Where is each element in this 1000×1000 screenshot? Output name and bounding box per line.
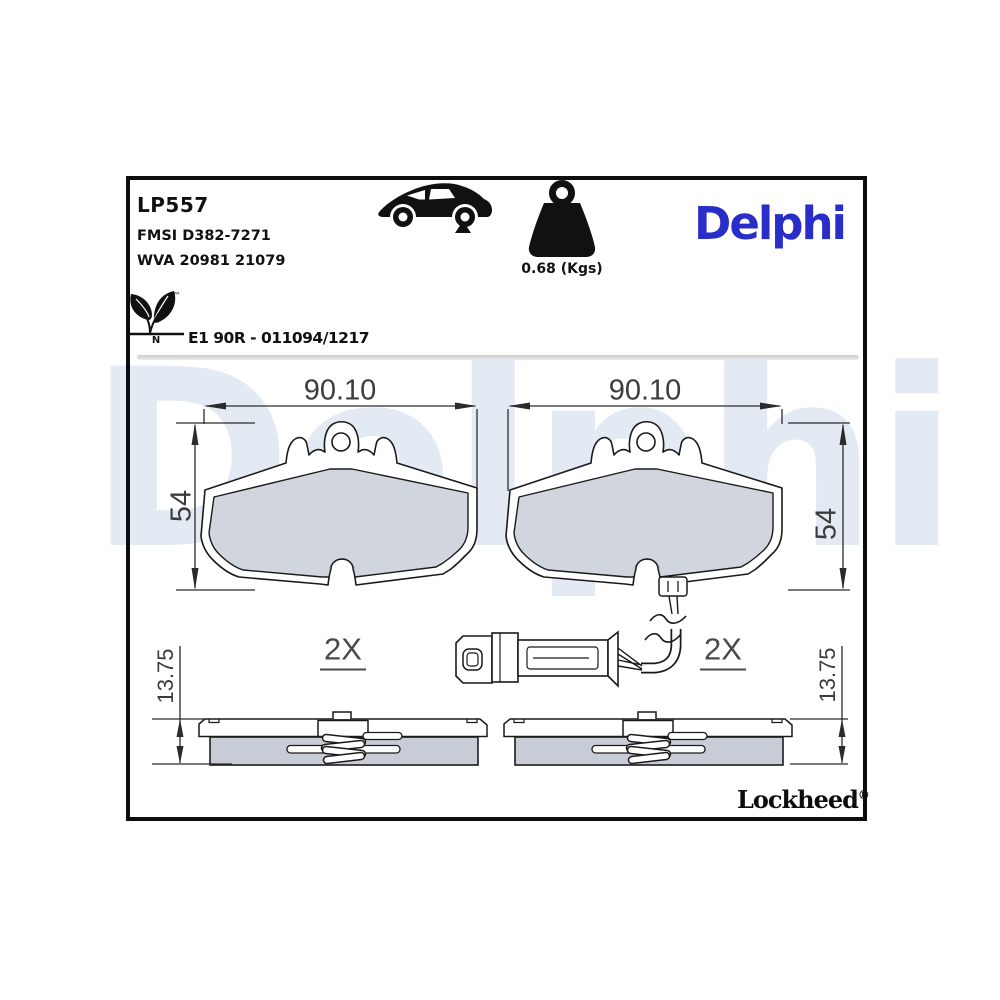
lockheed-brand: Lockheed® <box>737 785 869 814</box>
trademark-symbol: ™ <box>173 291 181 300</box>
thickness-dimension-label-right: 13.75 <box>815 647 841 702</box>
approval-code: E1 90R - 011094/1217 <box>188 329 369 347</box>
height-dimension-label-right: 54 <box>811 508 844 540</box>
width-dimension-label-right: 90.10 <box>609 375 682 408</box>
lockheed-text: Lockheed <box>737 785 858 814</box>
eco-mark-letter: N <box>147 335 165 346</box>
drawing-frame <box>126 176 867 821</box>
height-dimension-label-left: 54 <box>166 490 199 522</box>
weight-value: 0.68 (Kgs) <box>512 261 612 277</box>
quantity-label-right: 2X <box>700 632 746 671</box>
header-separator <box>137 355 859 360</box>
fmsi-reference: FMSI D382-7271 <box>137 228 271 244</box>
quantity-label-left: 2X <box>320 632 366 671</box>
width-dimension-label-left: 90.10 <box>304 375 377 408</box>
wva-reference: WVA 20981 21079 <box>137 253 285 269</box>
datasheet-page: Delphi LP557 FMSI D382-7271 WVA 20981 21… <box>0 0 1000 1000</box>
thickness-dimension-label-left: 13.75 <box>153 648 179 703</box>
part-number: LP557 <box>137 193 209 217</box>
delphi-logo: Delphi <box>694 201 845 246</box>
registered-symbol: ® <box>858 788 869 802</box>
